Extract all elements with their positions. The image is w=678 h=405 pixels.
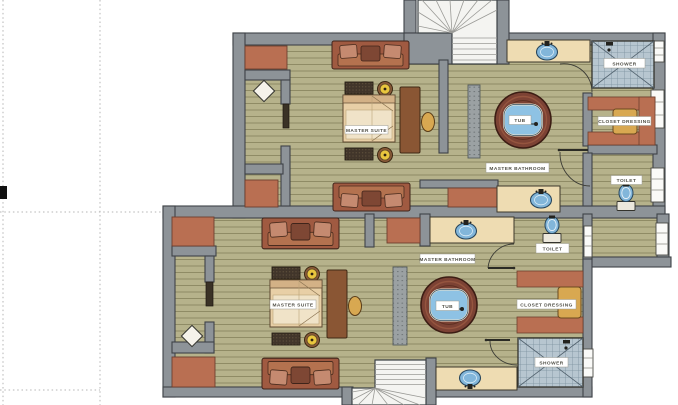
desk-chair: [422, 113, 435, 132]
label-text: MASTER BATHROOM: [419, 257, 475, 263]
bedside-rug: [272, 267, 300, 279]
desk: [400, 87, 420, 153]
label-text: CLOSET DRESSING: [520, 302, 573, 308]
sofa: [262, 218, 339, 249]
label-text: TOILET: [543, 246, 563, 252]
bedside-lamp: [378, 148, 393, 163]
label-toilet: TOILET: [536, 244, 569, 254]
label-text: TUB: [442, 304, 453, 310]
rug: [245, 46, 287, 69]
bedside-lamp: [378, 82, 393, 97]
bedside-rug: [272, 333, 300, 345]
rug: [448, 188, 497, 207]
shower-head-icon: [606, 42, 613, 46]
label-tub: TUB: [436, 301, 459, 311]
shower-head-icon: [563, 340, 570, 344]
bedside-rug: [345, 148, 373, 160]
crop-mark: [0, 186, 7, 199]
bedside-lamp: [305, 333, 320, 348]
floor-plan-drawing: MASTER SUITE MASTER BATHROOM TUB SHOWER …: [0, 0, 678, 405]
label-text: SHOWER: [612, 61, 636, 67]
lower-right-room-window: [656, 223, 668, 255]
lower-unit-right-room-floor: [585, 216, 659, 259]
sofa: [333, 183, 410, 211]
upper-vestibule-door: [283, 104, 289, 128]
label-text: MASTER SUITE: [346, 128, 387, 134]
bedside-lamp: [305, 267, 320, 282]
desk-chair: [349, 297, 362, 316]
label-text: TUB: [514, 118, 525, 124]
runner-rug: [393, 267, 407, 345]
label-shower: SHOWER: [604, 59, 645, 69]
label-master-bathroom: MASTER BATHROOM: [419, 254, 475, 264]
label-text: SHOWER: [539, 360, 563, 366]
label-shower: SHOWER: [535, 358, 568, 368]
lower-toilet-doorway: [584, 226, 592, 257]
bed: [343, 95, 395, 142]
label-master-bathroom: MASTER BATHROOM: [486, 163, 549, 173]
label-text: MASTER SUITE: [272, 303, 313, 309]
label-text: CLOSET DRESSING: [598, 119, 651, 125]
runner-rug: [468, 85, 480, 158]
sofa: [262, 358, 339, 389]
label-master-suite: MASTER SUITE: [345, 126, 388, 135]
desk: [327, 270, 347, 338]
label-closet-dressing: CLOSET DRESSING: [598, 117, 651, 126]
label-master-suite: MASTER SUITE: [270, 300, 316, 309]
label-toilet: TOILET: [611, 176, 642, 185]
rug: [387, 218, 420, 243]
sofa: [332, 41, 409, 69]
label-text: MASTER BATHROOM: [489, 166, 545, 172]
rug: [172, 217, 214, 246]
rug: [245, 180, 278, 207]
bedside-rug: [345, 82, 373, 94]
label-tub: TUB: [509, 116, 531, 125]
lower-vestibule-door: [206, 282, 213, 306]
label-text: TOILET: [617, 178, 637, 184]
rug: [172, 357, 215, 387]
upper-toilet-window: [651, 168, 664, 202]
label-closet-dressing: CLOSET DRESSING: [517, 300, 576, 310]
page-guides: [0, 0, 163, 405]
floor-plan-canvas: MASTER SUITE MASTER BATHROOM TUB SHOWER …: [0, 0, 678, 405]
